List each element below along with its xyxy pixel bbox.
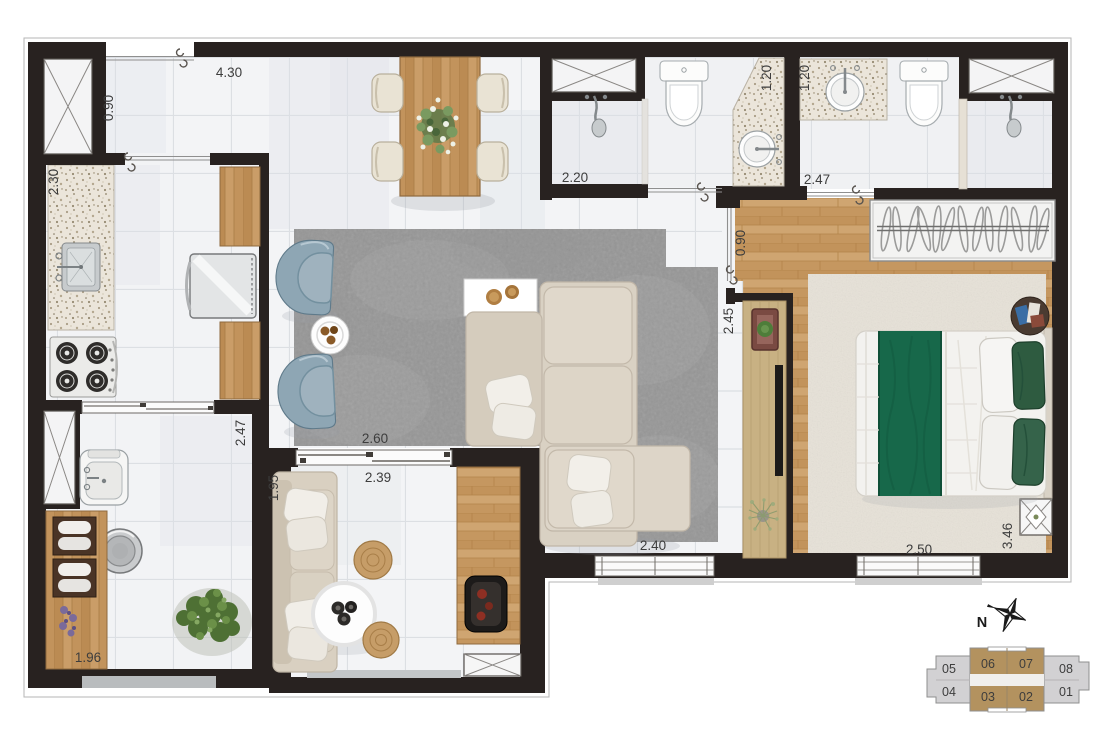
svg-text:4.30: 4.30 [216,65,242,80]
svg-text:2.47: 2.47 [804,172,830,187]
svg-text:03: 03 [981,690,995,704]
svg-text:2.60: 2.60 [362,431,388,446]
svg-text:2.30: 2.30 [46,169,61,195]
svg-text:08: 08 [1059,662,1073,676]
svg-text:0.90: 0.90 [733,230,748,256]
svg-text:2.47: 2.47 [233,420,248,446]
svg-text:02: 02 [1019,690,1033,704]
svg-text:2.40: 2.40 [640,538,666,553]
svg-text:2.45: 2.45 [721,308,736,334]
svg-text:N: N [977,615,987,631]
svg-text:0.90: 0.90 [101,95,116,121]
svg-text:1.20: 1.20 [797,65,812,91]
svg-text:07: 07 [1019,657,1033,671]
svg-text:1.20: 1.20 [759,65,774,91]
svg-text:1.95: 1.95 [266,475,281,501]
svg-text:04: 04 [942,685,956,699]
svg-text:2.50: 2.50 [906,542,932,557]
svg-text:1.96: 1.96 [75,650,101,665]
svg-text:01: 01 [1059,685,1073,699]
svg-text:2.39: 2.39 [365,470,391,485]
svg-text:3.46: 3.46 [1000,523,1015,549]
svg-text:06: 06 [981,657,995,671]
svg-text:05: 05 [942,662,956,676]
svg-text:2.20: 2.20 [562,170,588,185]
